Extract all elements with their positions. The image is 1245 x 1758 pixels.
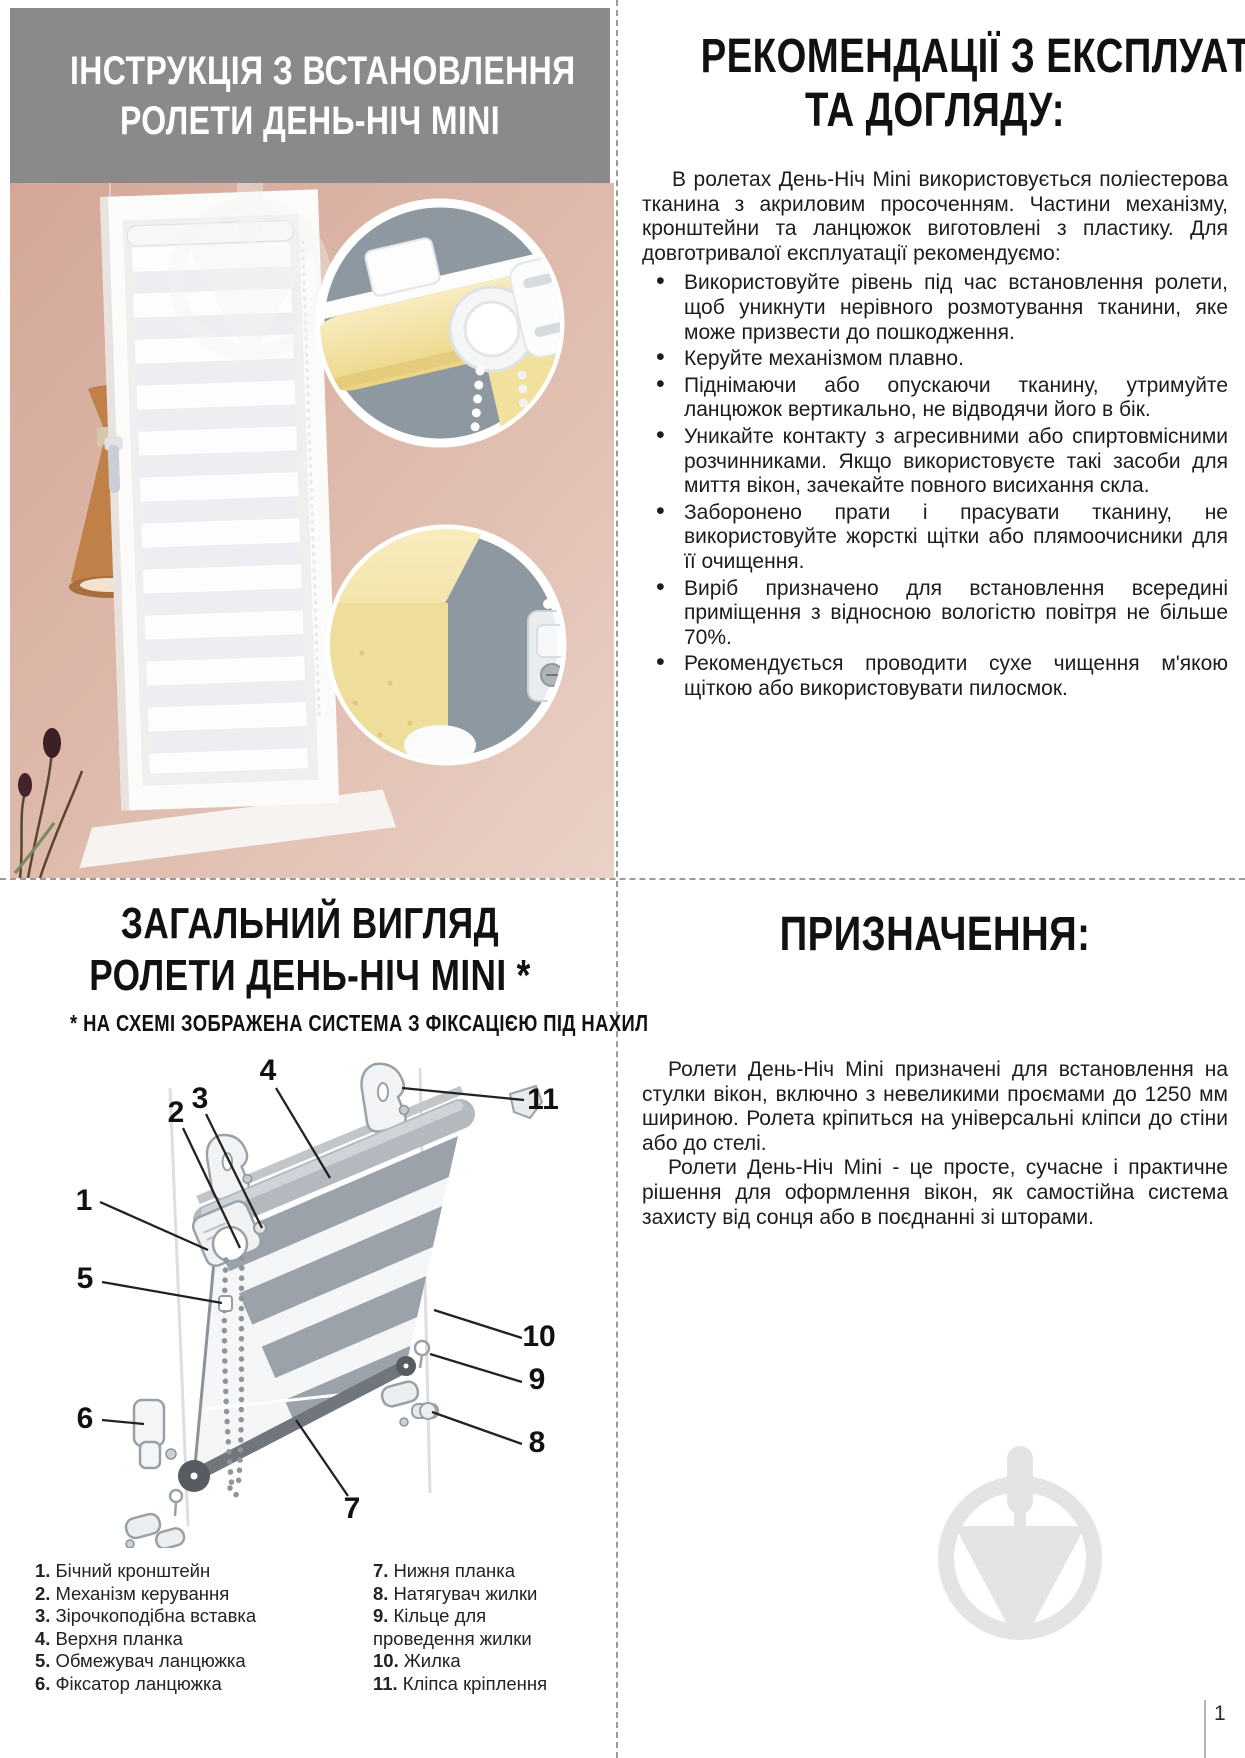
blind-diagram: 1 2 3 4 5 6 7 8 9 10 11 xyxy=(30,1048,590,1548)
purpose-para1: Ролети День-Ніч Mini призначені для вста… xyxy=(642,1058,1228,1156)
callout-2: 2 xyxy=(168,1096,185,1129)
callout-6: 6 xyxy=(77,1402,94,1435)
recommendations-heading-line2: ТА ДОГЛЯДУ: xyxy=(701,84,1170,138)
legend-column-right: 7.Нижня планка 8.Натягувач жилки 9.Кільц… xyxy=(373,1560,578,1696)
callout-8: 8 xyxy=(529,1426,546,1459)
horizontal-dashed-divider xyxy=(0,878,1245,880)
callout-4: 4 xyxy=(260,1054,277,1087)
legend-item: 9.Кільце для проведення жилки xyxy=(373,1605,578,1650)
list-item: Використовуйте рівень під час встановлен… xyxy=(642,271,1228,345)
legend-item: 2.Механізм керування xyxy=(35,1583,315,1606)
footer-rule xyxy=(1204,1700,1206,1758)
brand-watermark-icon xyxy=(930,1440,1110,1645)
purpose-body: Ролети День-Ніч Mini призначені для вста… xyxy=(642,1058,1228,1230)
callout-1: 1 xyxy=(76,1184,93,1217)
list-item: Керуйте механізмом плавно. xyxy=(642,347,1228,372)
callout-11: 11 xyxy=(527,1083,559,1116)
install-title-line2: РОЛЕТИ ДЕНЬ-НІЧ MINI xyxy=(70,96,550,146)
install-title-banner: ІНСТРУКЦІЯ З ВСТАНОВЛЕННЯ РОЛЕТИ ДЕНЬ-НІ… xyxy=(10,8,610,183)
purpose-heading-text: ПРИЗНАЧЕННЯ: xyxy=(701,908,1170,962)
blind-stripes xyxy=(132,242,308,773)
legend-item: 5.Обмежувач ланцюжка xyxy=(35,1650,315,1673)
purpose-heading: ПРИЗНАЧЕННЯ: xyxy=(642,908,1228,962)
list-item: Виріб призначено для встановлення всеред… xyxy=(642,577,1228,651)
list-item: Уникайте контакту з агресивними або спир… xyxy=(642,425,1228,499)
page-number: 1 xyxy=(1214,1702,1226,1726)
legend-item: 4.Верхня планка xyxy=(35,1628,315,1651)
window-photo xyxy=(10,183,614,878)
recommendations-heading: РЕКОМЕНДАЦІЇ З ЕКСПЛУАТАЦІЇ ТА ДОГЛЯДУ: xyxy=(642,30,1228,138)
recommendations-heading-line1: РЕКОМЕНДАЦІЇ З ЕКСПЛУАТАЦІЇ xyxy=(701,30,1170,84)
mounting-clip-right xyxy=(362,1064,409,1132)
list-item: Піднімаючи або опускаючи тканину, утриму… xyxy=(642,374,1228,423)
legend-item: 11.Кліпса кріплення xyxy=(373,1673,578,1696)
legend-item: 3.Зірочкоподібна вставка xyxy=(35,1605,315,1628)
recommendations-list: Використовуйте рівень під час встановлен… xyxy=(642,271,1228,701)
recommendations-body: В ролетах День-Ніч Mini використовується… xyxy=(642,168,1228,701)
callout-7: 7 xyxy=(344,1492,361,1525)
overview-heading: ЗАГАЛЬНИЙ ВИГЛЯД РОЛЕТИ ДЕНЬ-НІЧ MINI * … xyxy=(10,898,610,1038)
instruction-page: ІНСТРУКЦІЯ З ВСТАНОВЛЕННЯ РОЛЕТИ ДЕНЬ-НІ… xyxy=(0,0,1245,1758)
legend-item: 7.Нижня планка xyxy=(373,1560,578,1583)
purpose-para2: Ролети День-Ніч Mini - це просте, сучасн… xyxy=(642,1156,1228,1230)
list-item: Рекомендується проводити сухе чищення м'… xyxy=(642,652,1228,701)
callout-10: 10 xyxy=(522,1320,555,1353)
list-item: Заборонено прати і прасувати тканину, не… xyxy=(642,501,1228,575)
legend-item: 10.Жилка xyxy=(373,1650,578,1673)
guide-line-left xyxy=(170,1088,188,1526)
legend-column-left: 1.Бічний кронштейн 2.Механізм керування … xyxy=(35,1560,315,1696)
legend-item: 8.Натягувач жилки xyxy=(373,1583,578,1606)
overview-heading-line1: ЗАГАЛЬНИЙ ВИГЛЯД xyxy=(70,898,550,950)
callout-5: 5 xyxy=(77,1262,94,1295)
legend-item: 6.Фіксатор ланцюжка xyxy=(35,1673,315,1696)
overview-note: * НА СХЕМІ ЗОБРАЖЕНА СИСТЕМА З ФІКСАЦІЄЮ… xyxy=(70,1008,550,1038)
callout-9: 9 xyxy=(529,1363,546,1396)
callout-3: 3 xyxy=(192,1082,209,1115)
recommendations-intro: В ролетах День-Ніч Mini використовується… xyxy=(642,168,1228,266)
install-title-line1: ІНСТРУКЦІЯ З ВСТАНОВЛЕННЯ xyxy=(70,46,550,96)
legend-item: 1.Бічний кронштейн xyxy=(35,1560,315,1583)
overview-heading-line2: РОЛЕТИ ДЕНЬ-НІЧ MINI * xyxy=(70,950,550,1002)
